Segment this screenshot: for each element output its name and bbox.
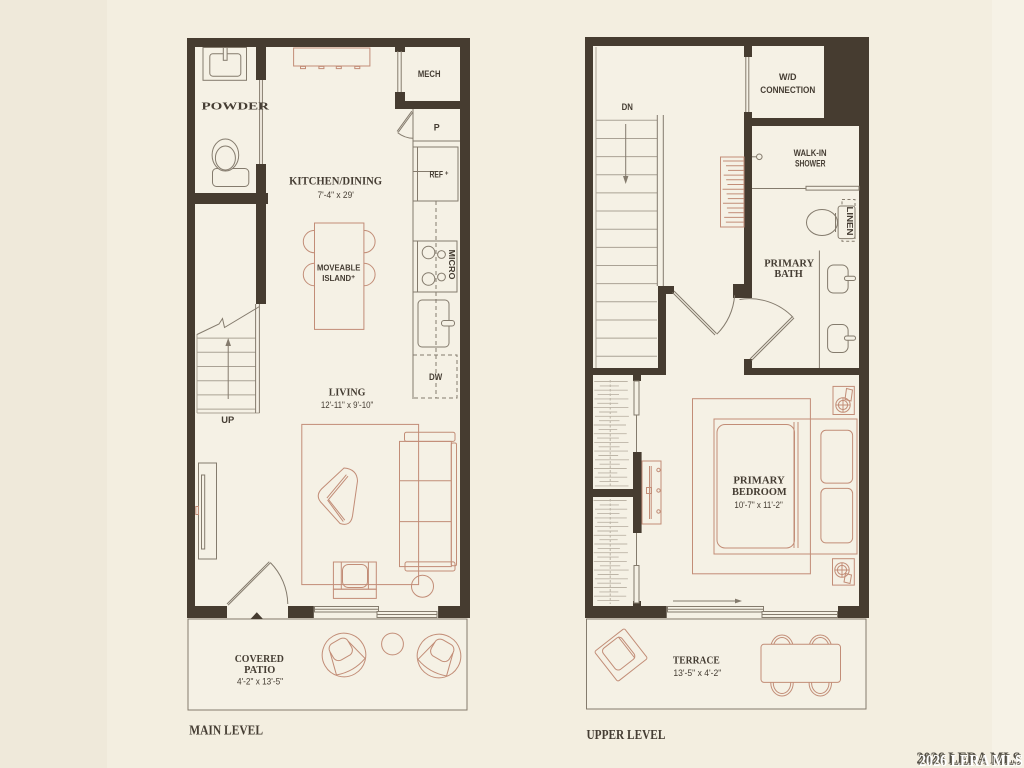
svg-text:UP: UP xyxy=(221,415,234,425)
svg-text:MAIN LEVEL: MAIN LEVEL xyxy=(189,722,263,737)
svg-text:LIVING: LIVING xyxy=(329,387,366,399)
svg-text:MICRO: MICRO xyxy=(447,250,457,280)
svg-text:BATH: BATH xyxy=(774,269,802,280)
svg-text:LINEN: LINEN xyxy=(845,207,854,236)
svg-text:CONNECTION: CONNECTION xyxy=(760,85,815,95)
svg-text:12'-11" x 9'-10": 12'-11" x 9'-10" xyxy=(321,400,373,410)
svg-text:2026 LERA MLS: 2026 LERA MLS xyxy=(919,751,1023,768)
svg-text:PRIMARY: PRIMARY xyxy=(733,476,785,487)
svg-text:WALK-IN: WALK-IN xyxy=(794,148,827,158)
svg-text:TERRACE: TERRACE xyxy=(673,656,720,667)
svg-text:P: P xyxy=(434,122,441,132)
svg-text:10'-7" x 11'-2": 10'-7" x 11'-2" xyxy=(734,500,782,510)
svg-text:MECH: MECH xyxy=(418,69,441,79)
svg-text:7'-4" x 29': 7'-4" x 29' xyxy=(318,190,354,201)
svg-text:DN: DN xyxy=(622,102,633,112)
svg-text:4'-2" x 13'-5": 4'-2" x 13'-5" xyxy=(237,677,283,687)
svg-text:ISLAND⁺: ISLAND⁺ xyxy=(322,273,355,283)
svg-text:W/D: W/D xyxy=(779,72,797,82)
svg-text:MOVEABLE: MOVEABLE xyxy=(317,263,361,273)
svg-text:PATIO: PATIO xyxy=(244,665,275,676)
svg-text:UPPER LEVEL: UPPER LEVEL xyxy=(587,727,666,742)
svg-text:COVERED: COVERED xyxy=(235,654,285,665)
svg-text:SHOWER: SHOWER xyxy=(795,159,826,169)
svg-text:DW: DW xyxy=(429,372,443,382)
svg-text:KITCHEN/DINING: KITCHEN/DINING xyxy=(289,176,382,188)
svg-text:REF ⁺: REF ⁺ xyxy=(430,170,449,180)
svg-text:13'-5" x 4'-2": 13'-5" x 4'-2" xyxy=(673,668,721,678)
svg-text:POWDER: POWDER xyxy=(202,102,271,113)
svg-text:BEDROOM: BEDROOM xyxy=(732,487,787,498)
